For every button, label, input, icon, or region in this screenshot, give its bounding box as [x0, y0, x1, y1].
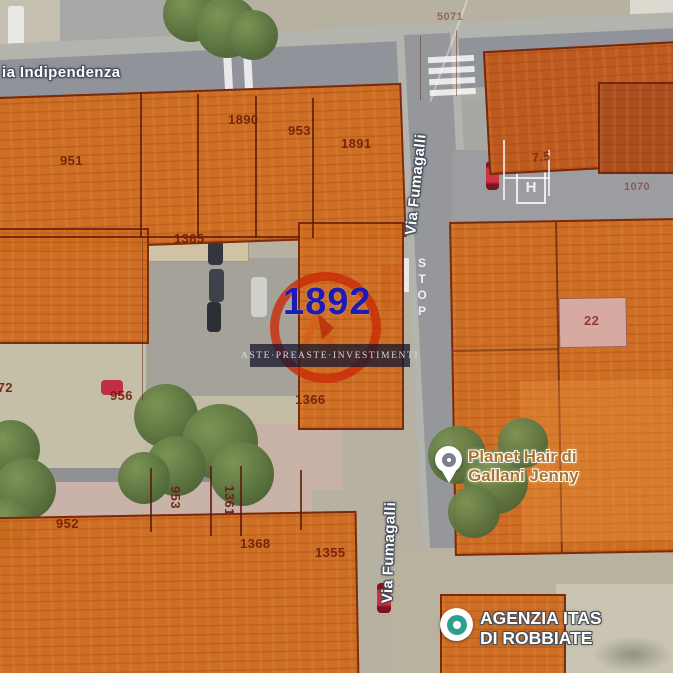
map-pin-icon[interactable]: [435, 446, 462, 473]
parcel-boundary-line: [0, 236, 300, 238]
parcel-label-953-bottom: 953: [168, 486, 183, 509]
parcel-label-5071: 5071: [437, 11, 463, 23]
parcel-boundary-line: [150, 468, 152, 532]
bus-stop-h-marking: H: [516, 170, 546, 204]
parcel-boundary-line: [140, 92, 142, 238]
parcel-label-953-top: 953: [288, 123, 311, 138]
poi-label-agenzia-itas[interactable]: AGENZIA ITAS DI ROBBIATE: [480, 608, 602, 648]
street-label-indipendenza: ia Indipendenza: [2, 64, 121, 81]
tree-canopy: [448, 486, 500, 538]
zebra-stripe: [428, 55, 474, 63]
parcel-left-column: [0, 228, 149, 344]
car-dark-parked: [209, 269, 224, 302]
satellite-map-canvas[interactable]: STOP H: [0, 0, 673, 673]
zebra-stripe: [430, 88, 476, 96]
parcel-boundary-line: [210, 466, 212, 536]
parcel-label-1368: 1368: [240, 536, 271, 551]
poi-label-line1: Planet Hair di: [468, 447, 579, 466]
zebra-stripe: [428, 66, 474, 74]
parcel-label-1355: 1355: [315, 545, 346, 560]
car-light-parked: [251, 277, 267, 317]
parcel-white-line-v1: [503, 140, 505, 200]
parcel-label-22: 22: [584, 313, 599, 328]
street-label-text: Via Fumagalli: [379, 501, 400, 603]
parcel-label-1070: 1070: [624, 181, 650, 193]
parcel-boundary-line: [197, 94, 199, 238]
poi-label-line2: DI ROBBIATE: [480, 628, 602, 648]
parcel-boundary-line: [240, 466, 242, 536]
parcel-roof-brown-top-right: [598, 82, 673, 174]
pin-inner-dot: [447, 458, 451, 462]
stop-road-marking: STOP: [415, 256, 429, 320]
crosswalk-intersection: [428, 55, 478, 101]
pin-tail: [442, 471, 456, 483]
parcel-label-951: 951: [60, 153, 83, 168]
parcel-label-1361: 1361: [222, 485, 237, 516]
parcel-white-line-h1: [504, 177, 550, 179]
parcel-boundary-line: [456, 30, 457, 96]
poi-label-line1: AGENZIA ITAS: [480, 608, 602, 628]
parcel-boundary-line: [420, 36, 421, 100]
parcel-label-1890: 1890: [228, 112, 259, 127]
parcel-block-bottom-left: [0, 511, 359, 673]
map-pin-icon[interactable]: [440, 608, 473, 641]
poi-label-line2: Gallani Jenny: [468, 466, 579, 485]
stop-line: [404, 258, 409, 292]
parcel-boundary-line: [300, 470, 302, 530]
tree-canopy: [210, 442, 274, 506]
parcel-label-1365: 1365: [174, 231, 205, 246]
parcel-label-7-5: 7.5: [531, 149, 551, 165]
parcel-label-956: 956: [110, 388, 133, 403]
tree-canopy: [118, 452, 170, 504]
vehicle-white-top-left: [8, 6, 24, 48]
parcel-inner-line: [453, 348, 559, 352]
h-letter: H: [526, 179, 537, 196]
car-dark-parked: [207, 302, 221, 332]
parcel-label-972: 972: [0, 380, 13, 395]
tree-canopy: [228, 10, 278, 60]
pin-inner-dot: [453, 621, 461, 629]
parcel-label-1366: 1366: [295, 392, 326, 407]
parcel-label-1891: 1891: [341, 136, 372, 151]
shadow-blob-bottom-right: [592, 636, 673, 673]
parcel-label-952: 952: [56, 516, 79, 531]
poi-label-planet-hair[interactable]: Planet Hair di Gallani Jenny: [468, 447, 579, 485]
parcel-boundary-line: [142, 238, 143, 400]
parcel-boundary-line: [312, 98, 314, 238]
